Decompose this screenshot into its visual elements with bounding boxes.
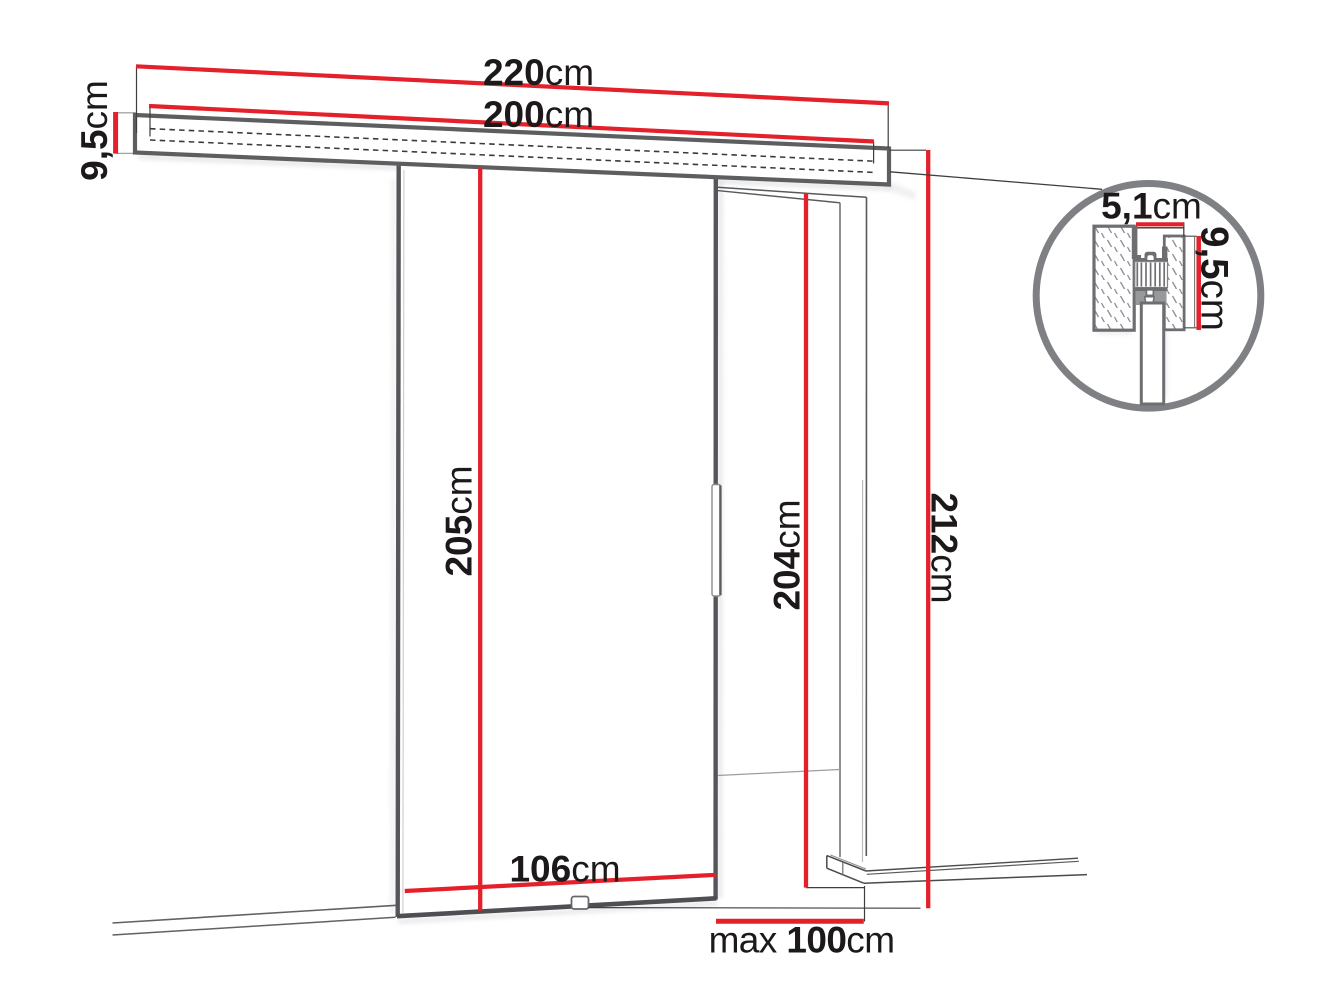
- svg-text:212cm: 212cm: [924, 492, 965, 603]
- svg-text:9,5cm: 9,5cm: [74, 80, 115, 181]
- svg-text:200cm: 200cm: [483, 94, 594, 135]
- svg-text:220cm: 220cm: [483, 52, 594, 93]
- svg-text:9,5cm: 9,5cm: [1193, 226, 1236, 331]
- svg-text:max 100cm: max 100cm: [709, 920, 895, 961]
- svg-text:204cm: 204cm: [767, 499, 808, 610]
- svg-text:205cm: 205cm: [439, 465, 480, 576]
- svg-text:5,1cm: 5,1cm: [1101, 185, 1202, 226]
- svg-text:106cm: 106cm: [509, 849, 620, 890]
